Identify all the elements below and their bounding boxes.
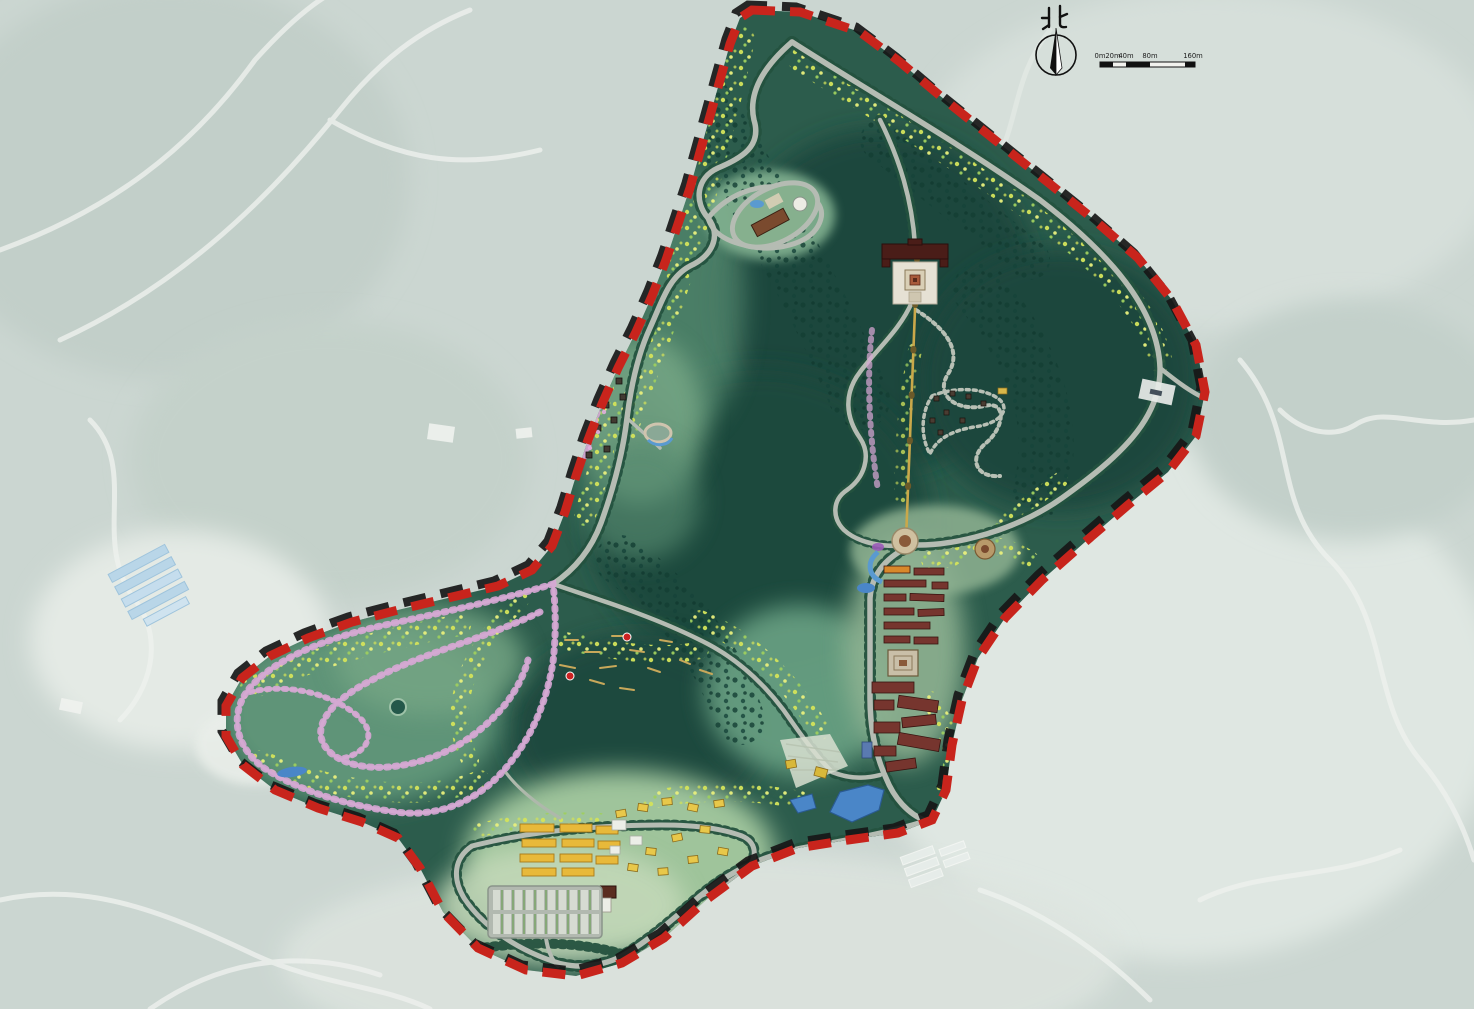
blue-roof-building <box>862 742 872 758</box>
lodge-dome <box>793 197 807 211</box>
plaza-pond <box>857 583 875 593</box>
flower-bed <box>872 543 884 551</box>
master-plan-map: 0m 20m 40m 80m 160m <box>0 0 1474 1009</box>
temple-hall <box>882 244 948 259</box>
lodge-pond <box>750 200 764 208</box>
complex-courtyard <box>888 650 918 676</box>
scale-label-0: 0m <box>1095 52 1106 60</box>
map-canvas: 0m 20m 40m 80m 160m <box>0 0 1474 1009</box>
scale-label-3: 80m <box>1142 52 1158 60</box>
scale-bar: 0m 20m 40m 80m 160m <box>1095 52 1204 67</box>
scale-label-4: 160m <box>1183 52 1203 60</box>
scale-bar-segments <box>1100 62 1195 67</box>
pond-pavilion <box>785 759 796 769</box>
scale-label-2: 40m <box>1118 52 1134 60</box>
parking-lot <box>488 886 602 938</box>
parking-rows <box>490 890 600 934</box>
pavilion <box>998 388 1007 394</box>
round-pond <box>390 699 406 715</box>
temple-steps <box>909 292 921 302</box>
